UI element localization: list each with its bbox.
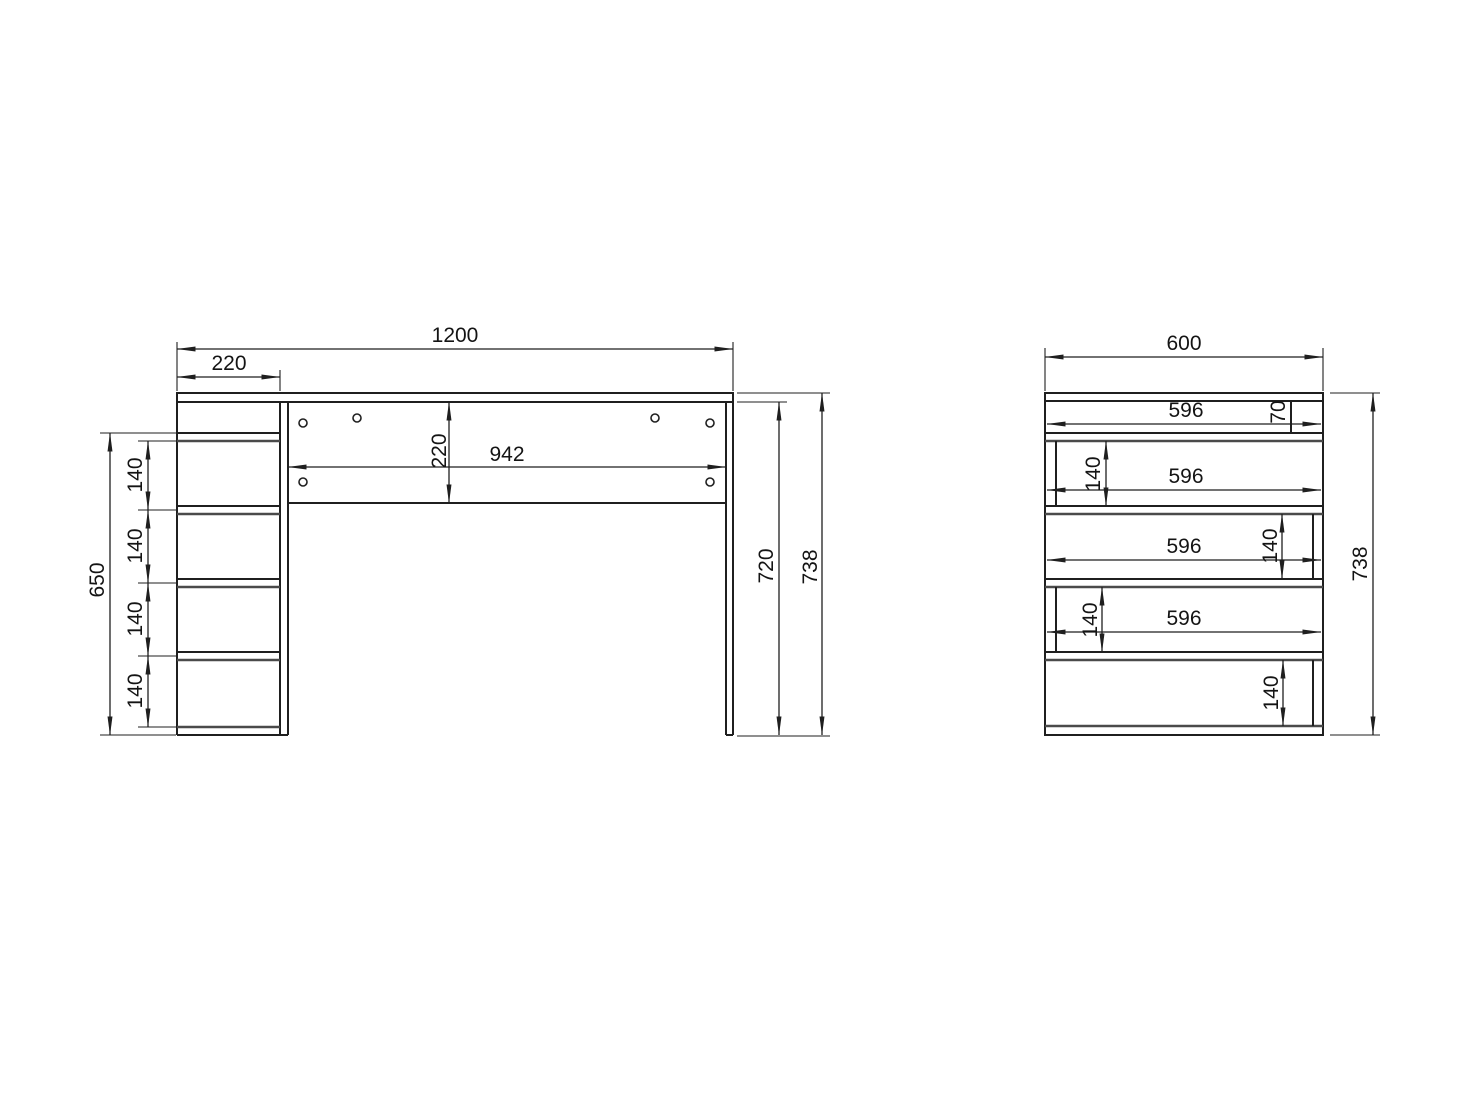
- dim-label-total-height: 738: [799, 549, 822, 584]
- desk-top-panel: [177, 393, 733, 402]
- dim-label-shelf-depth-2: 596: [1168, 465, 1203, 488]
- dim-label-compartment-2: 140: [124, 528, 147, 563]
- desk-dimension-drawing: 1200 220 650 140 140 140 140 220 942 720…: [0, 0, 1463, 1097]
- technical-drawing-page: 1200 220 650 140 140 140 140 220 942 720…: [0, 0, 1463, 1097]
- screw-hole: [353, 414, 361, 422]
- screw-hole: [706, 419, 714, 427]
- dim-label-total-depth: 600: [1166, 332, 1201, 355]
- dim-label-clearance-height: 720: [755, 548, 778, 583]
- dim-label-compartment-4: 140: [124, 673, 147, 708]
- front-view: 1200 220 650 140 140 140 140 220 942 720…: [86, 324, 830, 736]
- dim-label-back-panel-width: 942: [489, 443, 524, 466]
- dim-label-compartment-1: 140: [124, 457, 147, 492]
- dim-label-pedestal-height: 650: [86, 562, 109, 597]
- dim-label-shelf-depth-1: 596: [1168, 399, 1203, 422]
- screw-hole: [706, 478, 714, 486]
- screw-hole: [299, 419, 307, 427]
- dim-label-pedestal-width: 220: [211, 352, 246, 375]
- dim-label-compartment-2: 140: [1259, 528, 1282, 563]
- screw-hole: [651, 414, 659, 422]
- screw-hole: [299, 478, 307, 486]
- side-view: 600 596 70 596 140 596 140 596 140 140 7…: [1045, 332, 1380, 735]
- dim-label-compartment-3: 140: [124, 601, 147, 636]
- dim-label-compartment-3: 140: [1079, 602, 1102, 637]
- dim-label-shelf-depth-4: 596: [1166, 607, 1201, 630]
- dim-label-compartment-1: 140: [1082, 456, 1105, 491]
- dim-label-compartment-4: 140: [1260, 675, 1283, 710]
- dim-label-shelf-depth-3: 596: [1166, 535, 1201, 558]
- dim-label-total-height: 738: [1349, 546, 1372, 581]
- dim-label-back-panel-height: 220: [428, 433, 451, 468]
- dim-label-rail-depth: 70: [1267, 400, 1290, 423]
- dim-label-total-width: 1200: [432, 324, 479, 347]
